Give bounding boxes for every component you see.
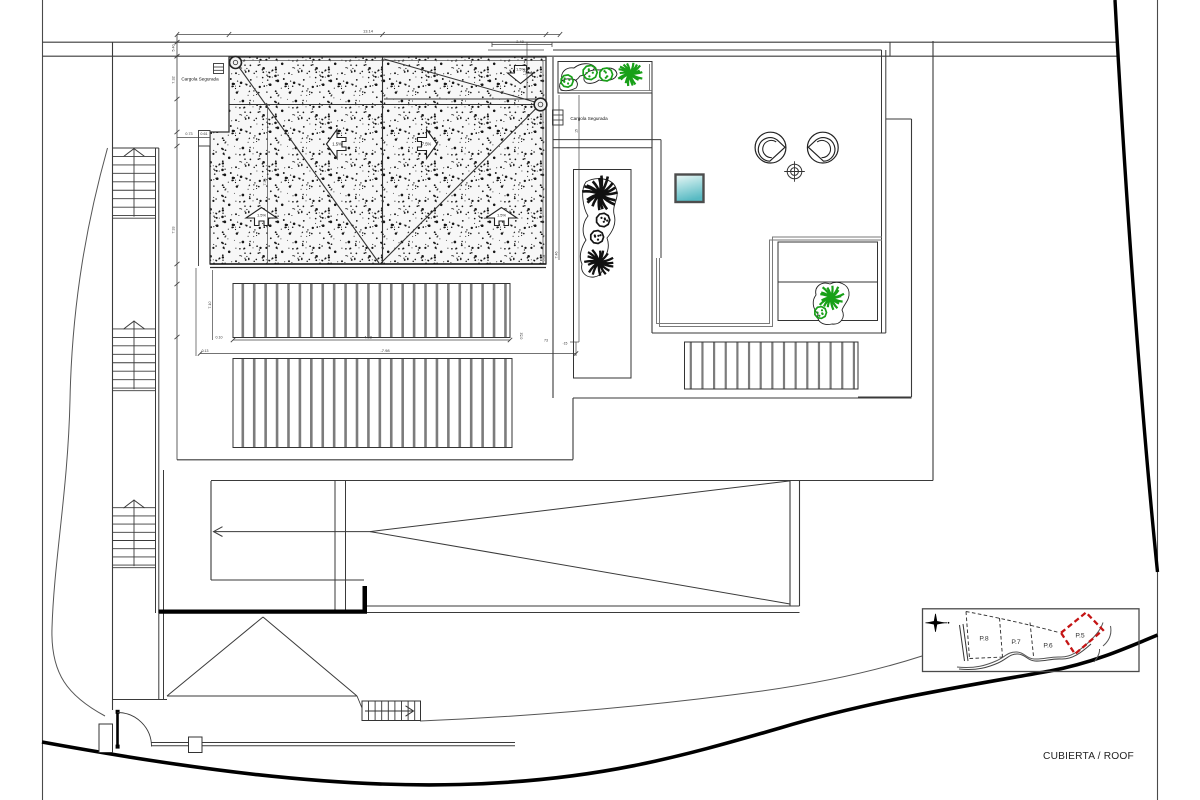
svg-text:7.5%: 7.5%: [422, 142, 432, 147]
svg-text:7.32: 7.32: [172, 76, 176, 83]
svg-text:7.33: 7.33: [263, 179, 267, 186]
svg-text:0.61: 0.61: [200, 132, 207, 136]
svg-text:0.52: 0.52: [520, 333, 524, 340]
svg-text:0.08: 0.08: [542, 255, 546, 262]
svg-text:CUBIERTA / ROOF: CUBIERTA / ROOF: [1043, 751, 1134, 762]
svg-text:15: 15: [574, 129, 578, 133]
svg-text:P.7: P.7: [1011, 639, 1021, 646]
svg-text:P.5: P.5: [1075, 633, 1085, 640]
svg-text:1.5%: 1.5%: [257, 213, 267, 218]
svg-text:Cargola Segurada: Cargola Segurada: [570, 116, 608, 121]
svg-text:Cargola Segurada: Cargola Segurada: [181, 77, 219, 82]
svg-text:73: 73: [544, 339, 548, 343]
svg-text:7.33: 7.33: [172, 227, 176, 234]
svg-text:13.14: 13.14: [363, 29, 374, 34]
svg-text:0.73: 0.73: [185, 132, 192, 136]
svg-text:-15: -15: [563, 342, 568, 346]
svg-text:1.5%: 1.5%: [332, 142, 342, 147]
svg-text:2.48: 2.48: [516, 40, 523, 44]
svg-text:1.34: 1.34: [522, 69, 526, 76]
svg-text:7.10: 7.10: [208, 301, 212, 308]
svg-text:5.40: 5.40: [172, 45, 176, 52]
svg-text:1.5%: 1.5%: [497, 213, 507, 218]
svg-text:P.8: P.8: [979, 636, 989, 643]
svg-text:0.13: 0.13: [202, 349, 209, 353]
svg-text:-7.98: -7.98: [380, 348, 390, 353]
svg-text:0.10: 0.10: [216, 336, 223, 340]
svg-text:P.6: P.6: [1043, 643, 1053, 650]
svg-text:7.46: 7.46: [555, 252, 559, 259]
